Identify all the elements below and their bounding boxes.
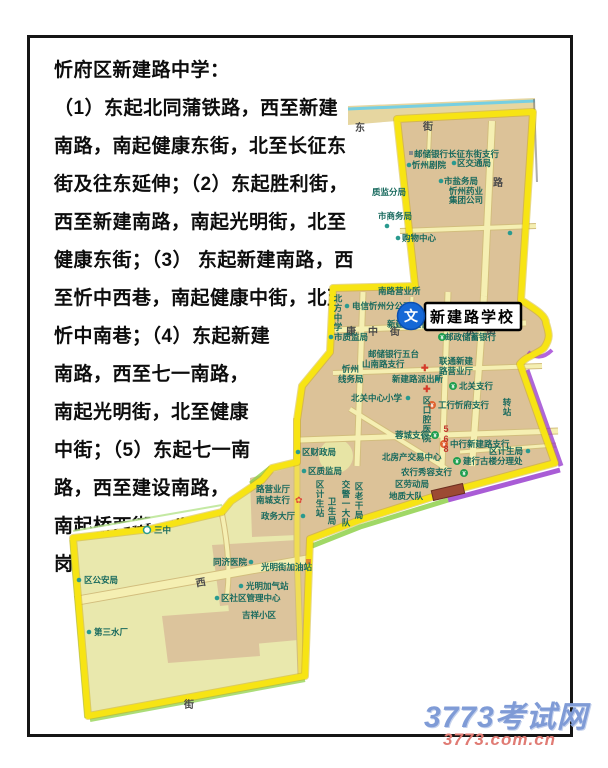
district-map: ¥ ¥ ¥ ¥ ¥ ¥ ¥ ¥ ✚ ✚ ✿ 东 街 路 康 中 街 东 街 西 …: [0, 0, 608, 768]
street-label: 街: [183, 698, 194, 711]
poi-label: 北方中学: [333, 293, 343, 332]
poi-label: 吉祥小区: [242, 610, 277, 620]
poi-label: 三中: [154, 525, 171, 535]
poi-label: 区计生站: [315, 480, 325, 518]
poi-label: 山南路支行: [362, 359, 405, 369]
hospital-cross-icon: ✚: [421, 363, 429, 373]
poi-label: 区计生局: [489, 446, 523, 456]
street-label: 街: [422, 120, 433, 133]
poi-label: 联通新建: [439, 356, 474, 366]
poi-label: 市质监局: [334, 332, 368, 342]
poi-label: 光明加气站: [245, 581, 289, 591]
school-label: 新建路学校: [430, 308, 515, 326]
hospital-cross-icon: ✚: [423, 384, 431, 394]
poi-label: 区劳动局: [395, 479, 429, 489]
poi-label: 市商务局: [378, 211, 412, 221]
poi-label: 政务大厅: [261, 511, 296, 521]
poi-label: 新建路派出所: [392, 374, 444, 384]
poi-label: 北房产交易中心: [382, 452, 442, 462]
poi-label: 区财政局: [302, 447, 336, 457]
poi-label: 南城支行: [256, 495, 291, 505]
poi-label: 区社区管理中心: [221, 593, 281, 603]
school-icon-char: 文: [404, 308, 419, 324]
street-label: 路: [493, 176, 504, 189]
poi-label: 区交通局: [457, 158, 491, 168]
school-dot-icon: [144, 527, 151, 534]
street-label: 中: [368, 325, 378, 338]
poi-label: 区质监局: [308, 466, 342, 476]
poi-label: 忻州剧院: [412, 160, 447, 170]
poi-label: 区公安局: [84, 575, 118, 585]
poi-label: 北关支行: [459, 381, 494, 391]
poi-label: 交警一大队: [341, 479, 351, 527]
poi-label: 蓉城支行: [394, 430, 430, 440]
poi-label: 购物中心: [401, 233, 437, 243]
poi-label: 光明街加油站: [260, 562, 313, 572]
poi-label: 工行忻府支行: [438, 400, 490, 410]
poi-label: 邮政储蓄银行: [445, 332, 497, 342]
postal-icon: [409, 151, 413, 155]
poi-label: 市盐务局: [444, 176, 478, 186]
poi-label: 转站: [502, 397, 512, 417]
poi-label: 第三水厂: [94, 627, 129, 637]
poi-label: 地质大队: [389, 491, 424, 501]
poi-label: 忻州: [342, 364, 359, 374]
poi-label: 集团公司: [448, 195, 483, 205]
street-label: 东: [355, 121, 365, 134]
poi-label: 路营业厅: [439, 366, 474, 376]
school-callout: 新建路学校 文: [398, 303, 522, 331]
page: 忻府区新建路中学： （1）东起北同蒲铁路，西至新建 南路，南起健康东街，北至长征…: [0, 0, 608, 768]
street-label: 西: [195, 576, 207, 590]
poi-label: 卫生局: [327, 497, 337, 526]
poi-label: 南路营业所: [378, 286, 421, 296]
poi-label: 同济医院: [213, 557, 248, 567]
poi-label: 线务局: [338, 374, 364, 384]
poi-label: 邮储银行五台: [368, 349, 420, 359]
poi-label: 区老干局: [354, 482, 364, 520]
poi-label: 路营业厅: [256, 484, 291, 494]
poi-label: 建行古楼分理处: [462, 456, 523, 466]
watermark-url: 3773.com.cn: [443, 730, 556, 750]
flower-icon: ✿: [295, 495, 303, 505]
poi-label: 农行秀容支行: [400, 467, 453, 477]
poi-label: 质监分局: [372, 187, 406, 197]
poi-label: 北关中心小学: [351, 393, 403, 403]
